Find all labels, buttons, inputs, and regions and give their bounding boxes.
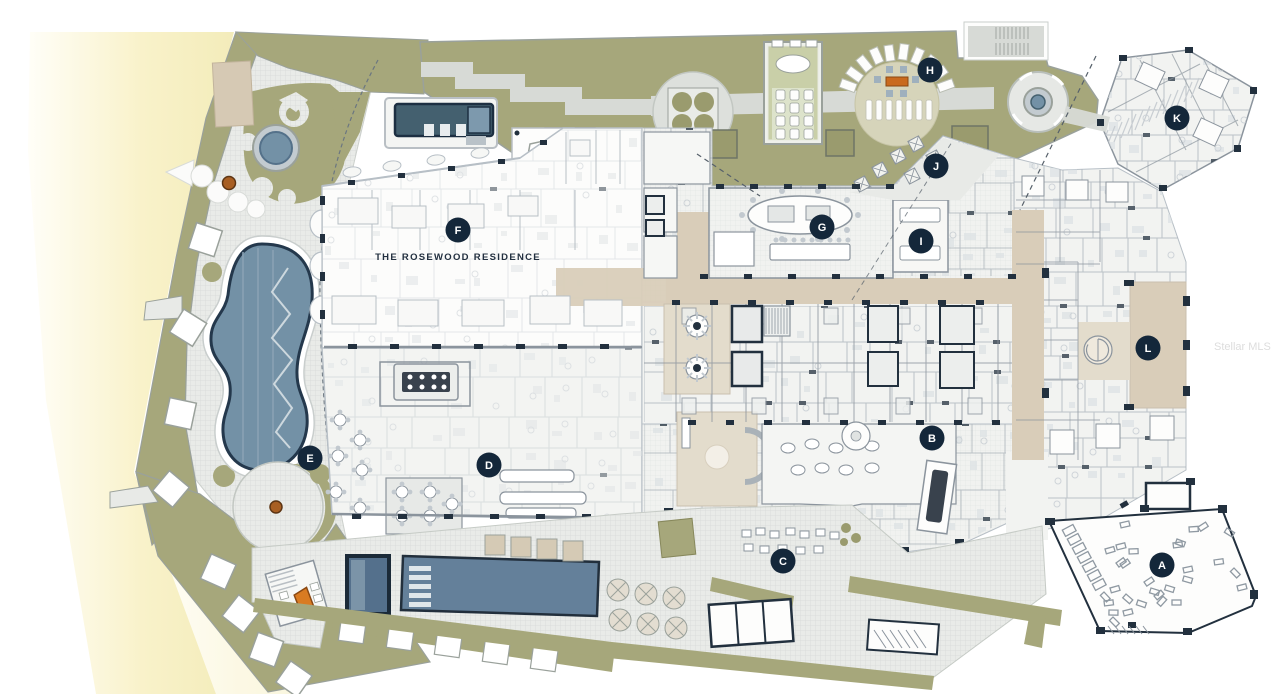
svg-text:Stellar MLS: Stellar MLS — [1214, 341, 1271, 353]
svg-text:D: D — [485, 460, 493, 472]
svg-text:E: E — [306, 453, 313, 465]
svg-text:J: J — [933, 161, 939, 173]
svg-text:C: C — [779, 556, 787, 568]
svg-text:A: A — [1158, 560, 1166, 572]
svg-text:K: K — [1173, 113, 1181, 125]
svg-text:B: B — [928, 433, 936, 445]
svg-text:H: H — [926, 65, 934, 77]
svg-text:I: I — [919, 236, 922, 248]
svg-text:G: G — [818, 222, 827, 234]
svg-text:F: F — [455, 225, 462, 237]
svg-text:THE ROSEWOOD RESIDENCE: THE ROSEWOOD RESIDENCE — [375, 252, 541, 263]
svg-text:L: L — [1145, 343, 1152, 355]
